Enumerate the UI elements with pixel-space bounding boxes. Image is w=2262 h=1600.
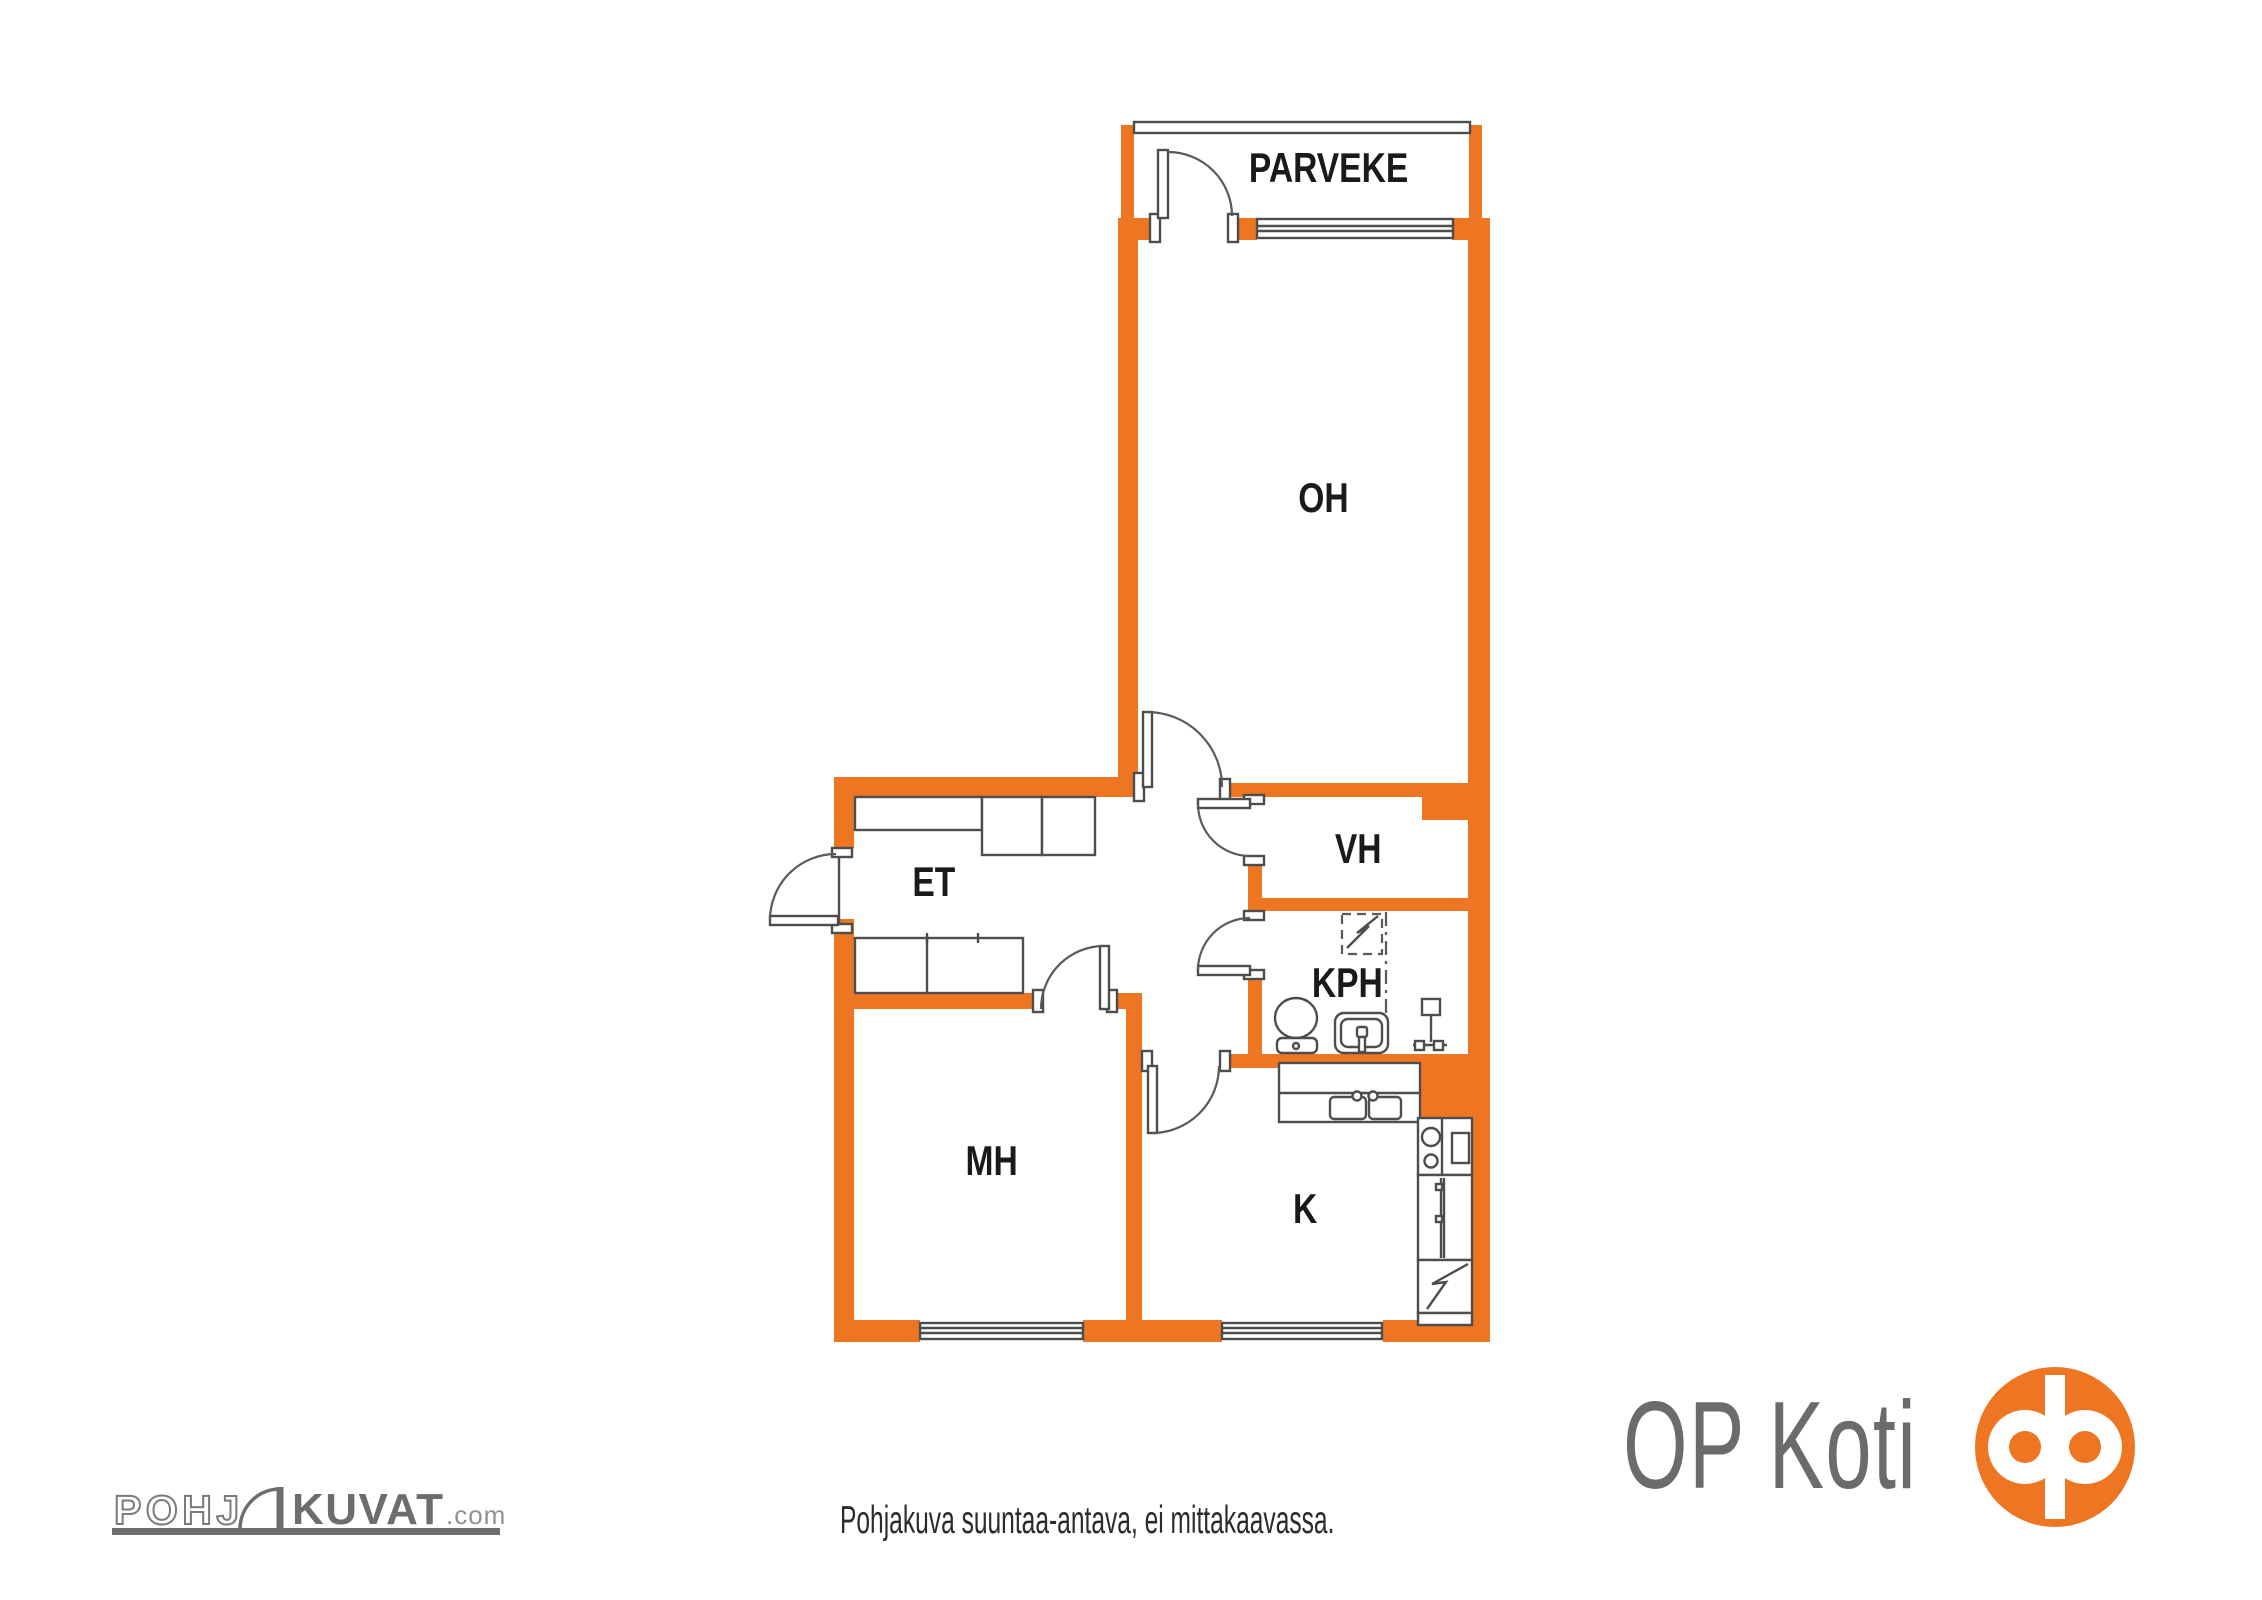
balcony-floor-wall-mid [1237, 218, 1257, 240]
bedroom-door [1033, 946, 1117, 1012]
bottom-wall-mid [1083, 1320, 1222, 1342]
room-label-kph: KPH [1187, 961, 1507, 1005]
balcony-window [1257, 219, 1453, 238]
kitchen-door [1142, 1051, 1230, 1133]
bathroom-sink [1335, 1013, 1388, 1053]
room-label-parveke: PARVEKE [1169, 146, 1489, 190]
pohjakuvat-logo-door-arc-icon [240, 1489, 280, 1529]
kitchen-window [1222, 1323, 1382, 1339]
op-logo-icon [1973, 1365, 2137, 1529]
op-koti-wordmark: OP Koti [1623, 1384, 1917, 1508]
stove [1418, 1118, 1472, 1175]
room-label-et: ET [774, 860, 1094, 904]
pohjakuvat-logo: POHJ KUVAT .com [112, 1475, 512, 1560]
pohjakuvat-logo-kuvat: KUVAT [292, 1485, 445, 1534]
building-wall-left [834, 919, 854, 1342]
bottom-wall-left [835, 1320, 920, 1342]
pohjakuvat-logo-com: .com [446, 1500, 506, 1530]
hall-wall-left-upper [834, 777, 854, 848]
room-label-mh: MH [832, 1139, 1152, 1183]
hall-wall-top [835, 777, 1140, 797]
kitchen-duct-block [1420, 1054, 1472, 1118]
bedroom-window [920, 1323, 1083, 1339]
disclaimer-text: Pohjakuva suuntaa-antava, ei mittakaavas… [840, 1499, 1334, 1543]
room-label-vh: VH [1198, 827, 1518, 871]
shower-fixture [1413, 999, 1447, 1050]
bedroom-wardrobe [855, 933, 1023, 993]
pohjakuvat-logo-pohj: POHJ [114, 1487, 244, 1533]
living-room-door [1134, 712, 1230, 801]
refrigerator [1418, 1260, 1472, 1325]
toilet [1275, 998, 1317, 1053]
bedroom-wall-top-left [834, 993, 1043, 1009]
balcony-railing [1134, 122, 1470, 133]
floorplan-canvas: PARVEKE OH VH ET KPH MH K Pohjakuva suun… [0, 0, 2262, 1600]
floorplan-drawing [0, 0, 2262, 1600]
hall-wardrobes [855, 797, 1095, 855]
washer-reservation [1342, 914, 1382, 954]
balcony-post-left [1121, 125, 1134, 220]
closet-bath-divider-wall [1250, 898, 1468, 911]
room-label-k: K [1145, 1187, 1465, 1231]
kitchen-counter [1279, 1063, 1420, 1122]
closet-duct-block [1422, 783, 1468, 820]
room-label-oh: OH [1163, 476, 1483, 520]
living-room-wall-left [1118, 218, 1138, 797]
